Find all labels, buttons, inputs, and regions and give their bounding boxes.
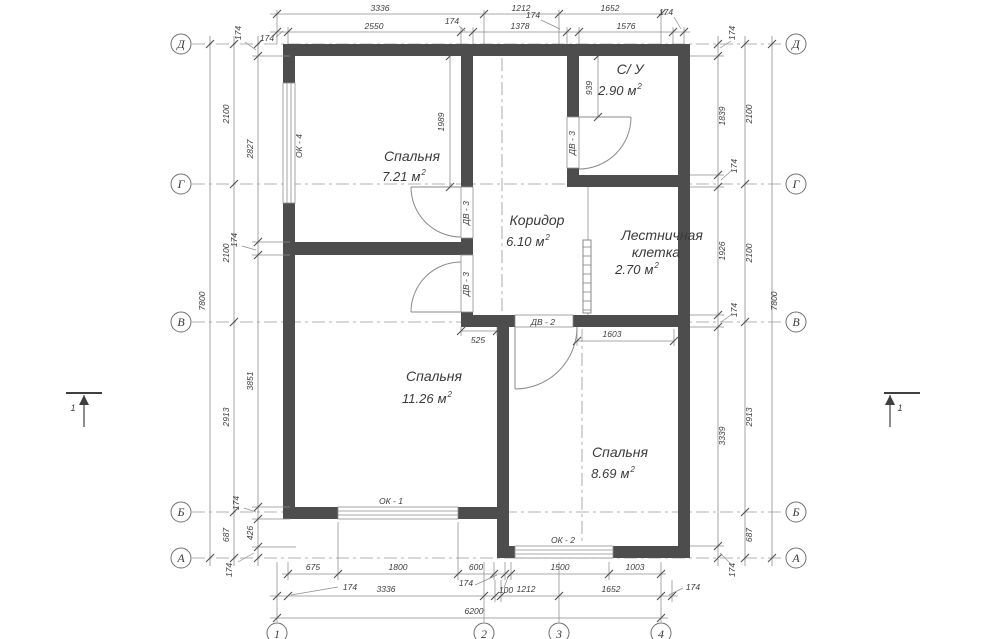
room-area-bedroom1: 7.21м2 bbox=[382, 168, 426, 184]
dim-int-525: 525 bbox=[471, 335, 485, 345]
axis-label-bottom-1: 1 bbox=[274, 627, 280, 639]
wall-top bbox=[283, 44, 690, 56]
floor-plan-drawing: 3336 1212 1652 2550 1378 1576 174 174 17… bbox=[0, 0, 1000, 639]
room-area-sup: 2 bbox=[629, 465, 635, 474]
dim-bot-1500: 1500 bbox=[551, 562, 570, 572]
dim-right-1839: 1839 bbox=[717, 106, 727, 125]
room-area-value: 6.10 bbox=[506, 234, 532, 249]
dim-right-687: 687 bbox=[744, 528, 754, 542]
room-area-sup: 2 bbox=[653, 261, 659, 270]
section-marks: 1 1 bbox=[66, 393, 920, 427]
room-area-sup: 2 bbox=[636, 82, 642, 91]
room-name-bedroom1: Спальня bbox=[384, 148, 440, 164]
dim-bot-174-3: 174 bbox=[686, 582, 700, 592]
room-name-bedroom3: Спальня bbox=[592, 444, 648, 460]
door-arc-dv3-upper bbox=[411, 187, 461, 237]
room-area-bedroom2: 11.26м2 bbox=[402, 390, 453, 406]
room-area-value: 11.26 bbox=[402, 391, 434, 406]
room-area-value: 7.21 bbox=[382, 169, 407, 184]
room-area-sup: 2 bbox=[447, 390, 453, 399]
door-arc-dv3-wc bbox=[579, 117, 631, 169]
dim-top-174-3: 174 bbox=[526, 10, 540, 20]
axis-grid bbox=[192, 44, 785, 558]
dim-left-2827: 2827 bbox=[245, 139, 255, 159]
dim-bot-600: 600 bbox=[469, 562, 483, 572]
room-area-wc: 2.90м2 bbox=[597, 82, 642, 98]
axis-label-right-a: А bbox=[791, 551, 800, 565]
dimension-labels-left: 7800 2100 2100 2913 687 2827 3851 426 17… bbox=[197, 26, 255, 577]
axis-label-left-d: Д bbox=[176, 37, 186, 51]
wall-right bbox=[678, 44, 690, 558]
floor-plan-svg: 3336 1212 1652 2550 1378 1576 174 174 17… bbox=[0, 0, 1000, 639]
dim-left-174-2: 174 bbox=[229, 233, 239, 247]
window-ok1 bbox=[338, 507, 458, 519]
door-label-dv3-wc: ДВ - 3 bbox=[567, 131, 577, 156]
axis-label-left-a: А bbox=[176, 551, 185, 565]
axis-label-right-b: Б bbox=[791, 505, 799, 519]
wall-step-vertical bbox=[497, 315, 509, 558]
dim-left-2100a: 2100 bbox=[221, 104, 231, 124]
opening-labels: ОК - 4 ОК - 1 ОК - 2 ДВ - 3 ДВ - 3 ДВ - … bbox=[294, 131, 577, 545]
room-area-value: 2.70 bbox=[614, 262, 641, 277]
door-label-dv3-lower: ДВ - 3 bbox=[461, 272, 471, 297]
dim-right-2100b: 2100 bbox=[744, 243, 754, 263]
room-area-unit: м bbox=[620, 466, 629, 481]
axis-label-right-v: В bbox=[792, 315, 800, 329]
ladder-rect bbox=[583, 240, 591, 313]
room-name-bedroom2: Спальня bbox=[406, 368, 462, 384]
openings bbox=[283, 83, 613, 558]
dim-top-1576: 1576 bbox=[617, 21, 636, 31]
room-area-unit: м bbox=[644, 262, 653, 277]
axis-label-left-b: Б bbox=[176, 505, 184, 519]
room-area-unit: м bbox=[535, 234, 544, 249]
room-area-sup: 2 bbox=[420, 168, 426, 177]
door-label-dv3-upper: ДВ - 3 bbox=[461, 201, 471, 226]
dim-left-7800: 7800 bbox=[197, 291, 207, 310]
dim-left-2913: 2913 bbox=[221, 407, 231, 427]
section-label-right: 1 bbox=[897, 403, 902, 413]
room-area-value: 8.69 bbox=[591, 466, 616, 481]
room-area-unit: м bbox=[411, 169, 420, 184]
dimension-labels-top: 3336 1212 1652 2550 1378 1576 174 174 17… bbox=[260, 3, 673, 43]
dim-right-174-4: 174 bbox=[727, 563, 737, 577]
room-name-staircase-line1: Лестничная bbox=[620, 227, 703, 243]
wall-mid-horizontal bbox=[283, 242, 473, 255]
dim-top-1378: 1378 bbox=[511, 21, 530, 31]
dim-bot-1800: 1800 bbox=[389, 562, 408, 572]
ticks-interior bbox=[446, 52, 678, 345]
room-name-staircase-line2: клетка bbox=[632, 244, 680, 260]
dim-top-3336: 3336 bbox=[371, 3, 390, 13]
axis-label-right-g: Г bbox=[792, 177, 801, 191]
wall-corridor-bottom bbox=[461, 315, 690, 327]
dim-right-1926: 1926 bbox=[717, 241, 727, 260]
door-label-dv2: ДВ - 2 bbox=[530, 317, 555, 327]
room-area-unit: м bbox=[627, 83, 636, 98]
leaders-left bbox=[238, 42, 256, 562]
section-label-left: 1 bbox=[70, 403, 75, 413]
dim-left-174-3: 174 bbox=[231, 496, 241, 510]
axis-label-bottom-2: 2 bbox=[481, 627, 487, 639]
dim-int-1989: 1989 bbox=[436, 112, 446, 131]
dim-bot-1003: 1003 bbox=[626, 562, 645, 572]
dim-top-1652: 1652 bbox=[601, 3, 620, 13]
dim-left-3851: 3851 bbox=[245, 371, 255, 390]
door-arc-dv2 bbox=[515, 327, 577, 389]
dim-top-174-4: 174 bbox=[659, 7, 673, 17]
dim-bot-6200: 6200 bbox=[465, 606, 484, 616]
room-area-corridor: 6.10м2 bbox=[506, 233, 550, 249]
window-label-ok2: ОК - 2 bbox=[551, 535, 575, 545]
dim-left-174-1: 174 bbox=[233, 26, 243, 40]
dim-left-687: 687 bbox=[221, 528, 231, 542]
dim-right-174-3: 174 bbox=[729, 303, 739, 317]
dim-right-7800: 7800 bbox=[769, 291, 779, 310]
room-area-value: 2.90 bbox=[597, 83, 624, 98]
dim-left-426: 426 bbox=[245, 526, 255, 540]
dim-left-174-4: 174 bbox=[224, 563, 234, 577]
room-name-wc: С/ У bbox=[617, 61, 646, 77]
dim-bot-1652: 1652 bbox=[602, 584, 621, 594]
dim-bot-3336: 3336 bbox=[377, 584, 396, 594]
ext-right bbox=[690, 56, 724, 546]
dim-top-174-1: 174 bbox=[260, 33, 274, 43]
wall-wc-bottom bbox=[567, 175, 690, 187]
section-arrow-left bbox=[79, 395, 89, 405]
room-area-staircase: 2.70м2 bbox=[614, 261, 659, 277]
room-area-bedroom3: 8.69м2 bbox=[591, 465, 635, 481]
dim-right-3339: 3339 bbox=[717, 426, 727, 445]
door-arc-dv3-lower bbox=[411, 262, 461, 312]
window-label-ok4: ОК - 4 bbox=[294, 134, 304, 158]
room-name-corridor: Коридор bbox=[510, 212, 565, 228]
dim-bot-174-2: 174 bbox=[459, 578, 473, 588]
room-area-sup: 2 bbox=[544, 233, 550, 242]
dim-bot-1212: 1212 bbox=[517, 584, 536, 594]
axis-label-left-v: В bbox=[177, 315, 185, 329]
dim-right-2100a: 2100 bbox=[744, 104, 754, 124]
dim-right-2913: 2913 bbox=[744, 407, 754, 427]
section-arrow-right bbox=[885, 395, 895, 405]
axis-circles: Д Г В Б А Д Г В Б А 1 2 3 4 bbox=[171, 34, 806, 639]
dim-bot-174-1: 174 bbox=[343, 582, 357, 592]
axis-label-left-g: Г bbox=[177, 177, 186, 191]
axis-label-bottom-4: 4 bbox=[658, 627, 664, 639]
dim-right-174-1: 174 bbox=[727, 26, 737, 40]
dim-int-939: 939 bbox=[584, 81, 594, 95]
axis-label-bottom-3: 3 bbox=[555, 627, 562, 639]
dim-top-2550: 2550 bbox=[364, 21, 384, 31]
window-ok2 bbox=[515, 546, 613, 558]
dimension-labels-right: 7800 2100 2100 2913 687 1839 1926 3339 1… bbox=[717, 26, 779, 577]
dim-top-174-2: 174 bbox=[445, 16, 459, 26]
dim-right-174-2: 174 bbox=[729, 159, 739, 173]
stair-symbol bbox=[583, 187, 591, 315]
dim-int-1603: 1603 bbox=[603, 329, 622, 339]
room-area-unit: м bbox=[438, 391, 447, 406]
window-label-ok1: ОК - 1 bbox=[379, 496, 403, 506]
axis-label-right-d: Д bbox=[791, 37, 801, 51]
room-labels: Спальня 7.21м2 С/ У 2.90м2 Коридор 6.10м… bbox=[382, 61, 703, 481]
dimension-labels-bottom: 675 1800 600 1500 1003 174 174 100 174 3… bbox=[306, 562, 700, 616]
ext-interior bbox=[461, 327, 674, 346]
dim-bot-675: 675 bbox=[306, 562, 320, 572]
dim-bot-100: 100 bbox=[499, 585, 513, 595]
